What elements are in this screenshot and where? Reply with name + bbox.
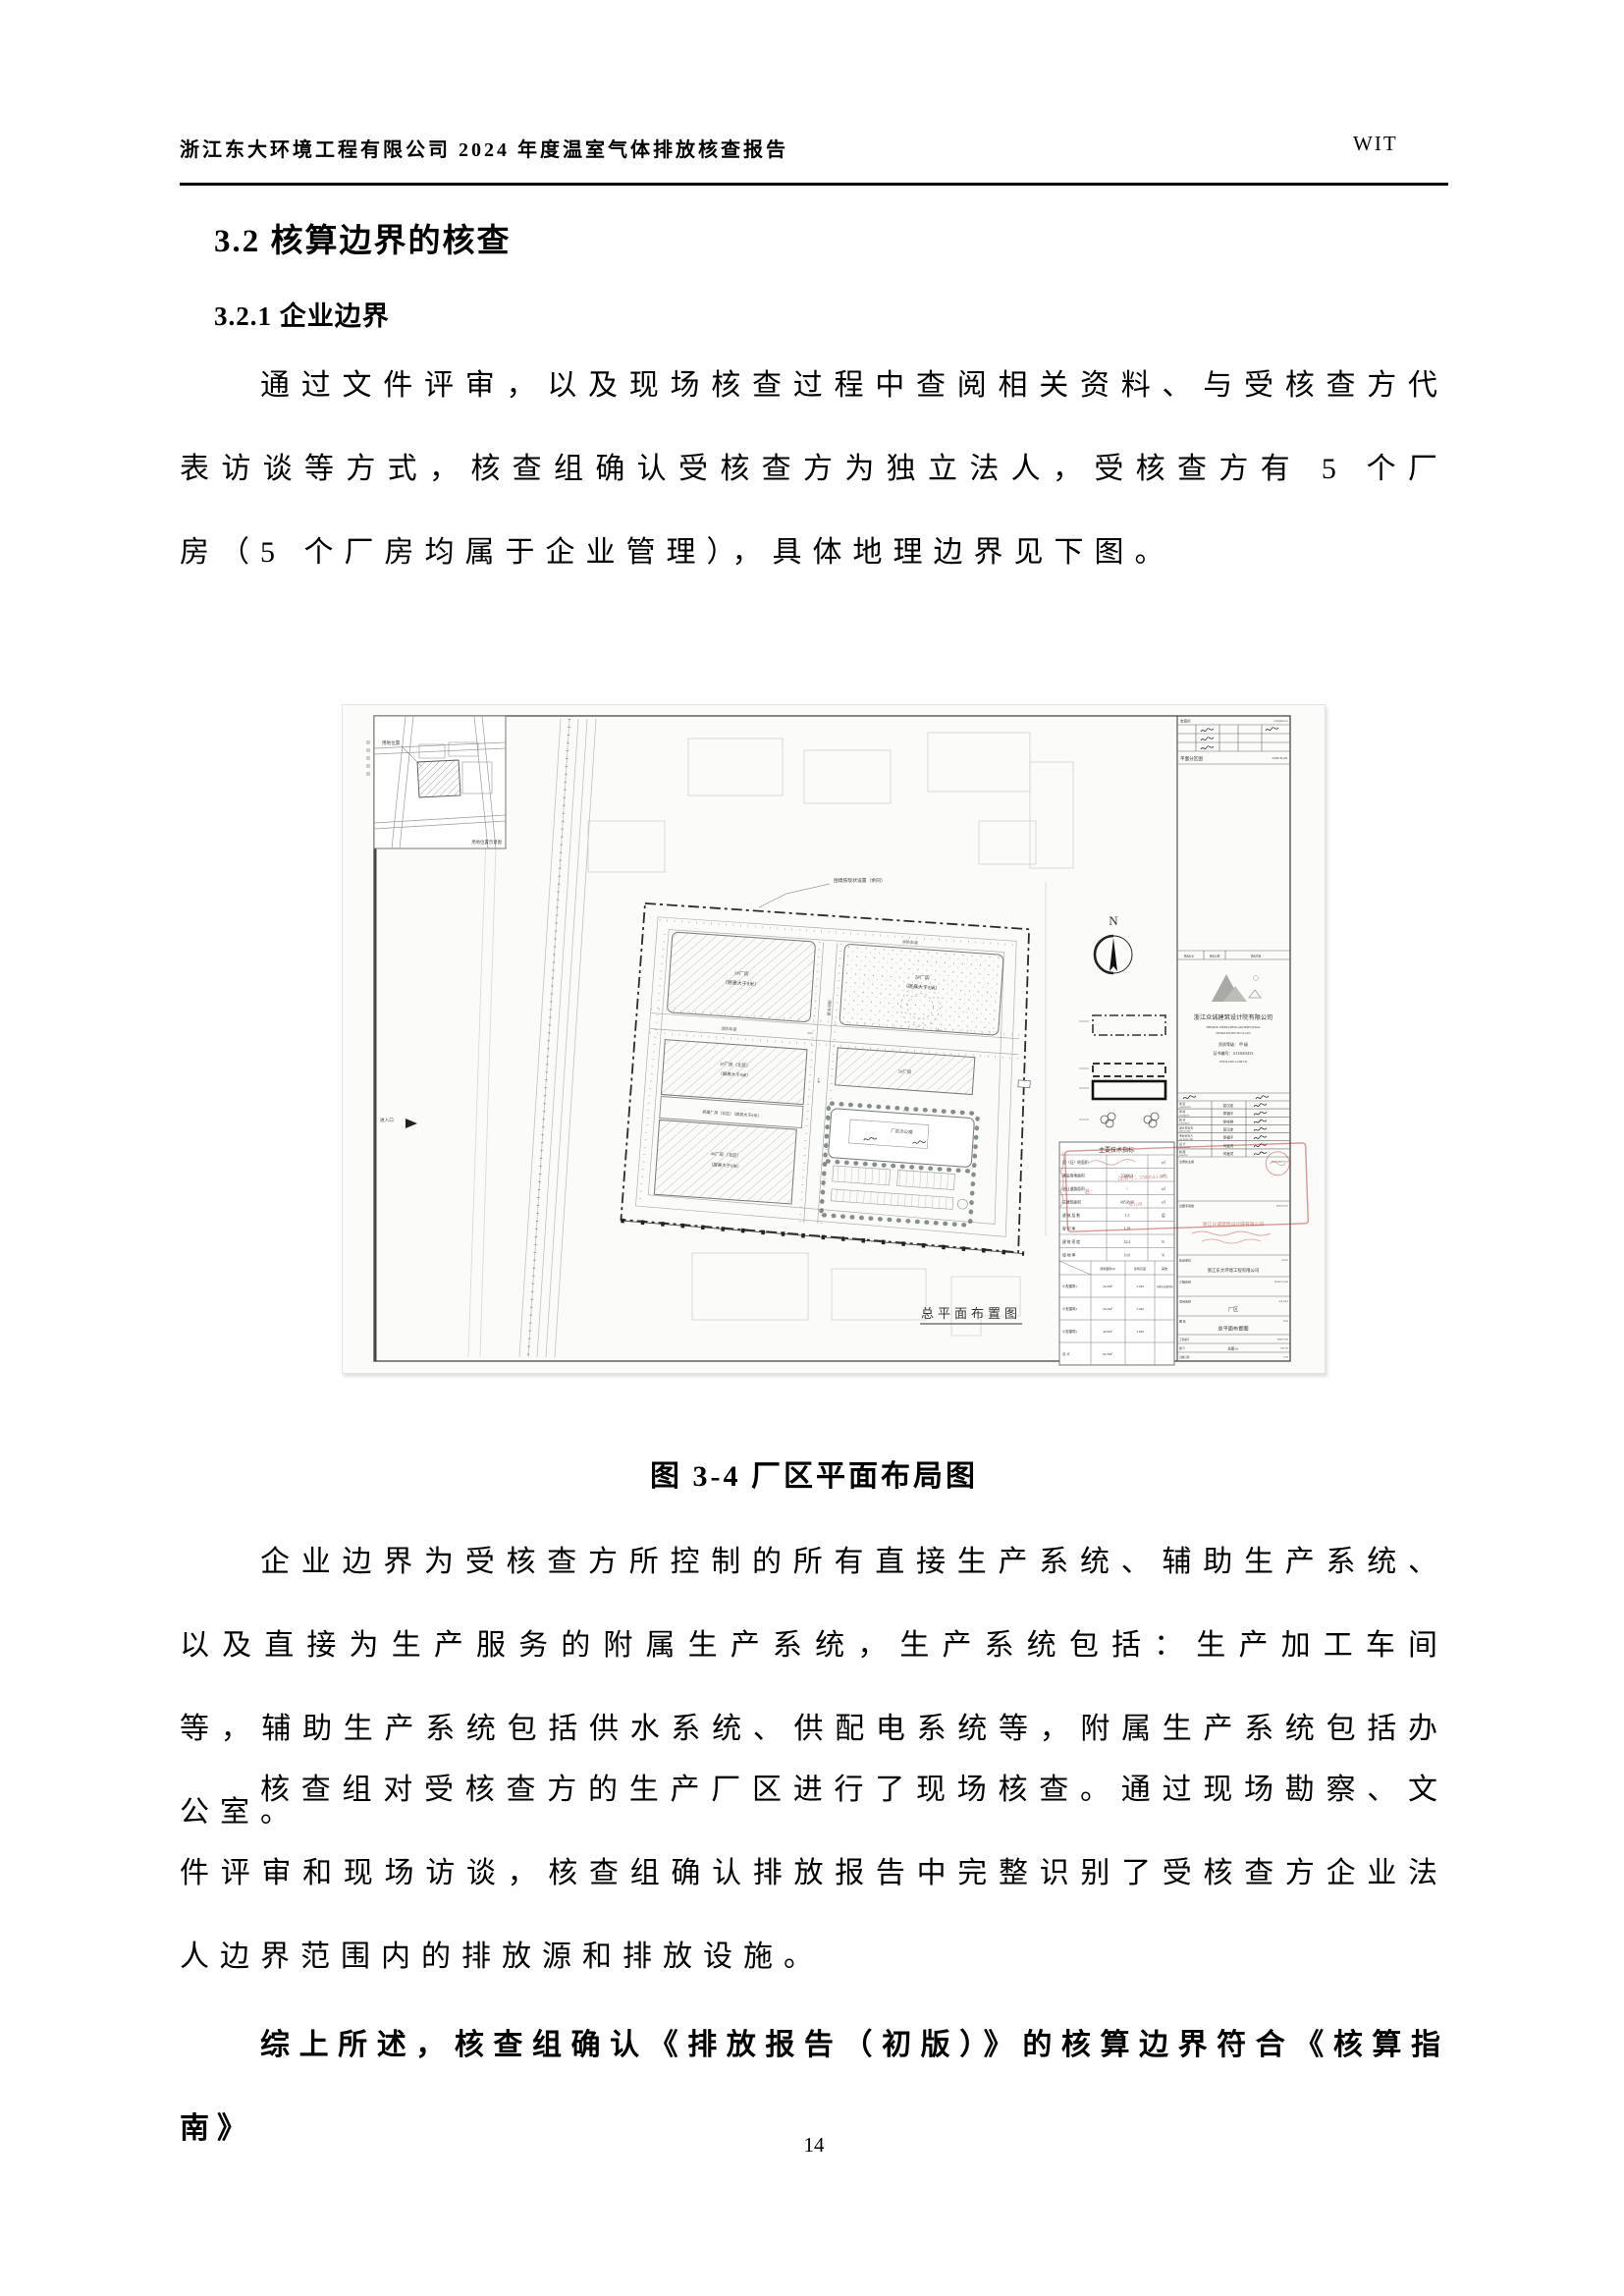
header-title: 浙江东大环境工程有限公司 2024 年度温室气体排放核查报告 [180,134,788,162]
title-block: 会签栏 CONFIRMED BY 平面分区图 ZONE PLAN 修改标记 修改… [1177,716,1290,1361]
parking-row [831,1189,953,1210]
tech-row-value: 10.0 [1124,1254,1131,1258]
design-institute-logo-icon [1212,974,1261,1002]
tb-role-cn: 审 定 [1179,1102,1185,1106]
revision-col: 修改标记 [1184,955,1195,958]
tb-role-cn: 制 图 [1179,1150,1185,1154]
fence-note-leader [759,884,830,907]
parking-row [897,1171,955,1190]
tb-name: 葛汉定 [1223,1127,1234,1132]
road-label: 消防车道 [721,1025,736,1032]
subtable-area: 94.3M² [1103,1352,1112,1356]
subtable-header: 其他 [1162,1266,1167,1271]
inset-site-parcel [417,760,460,797]
reg-seal-label: 注册执业章 [1179,1159,1194,1164]
cert-line: 证书编号：A133003433 [1214,1050,1254,1056]
inset-caption: 用地位置示意图 [471,839,502,846]
date-en: DATE [1283,1356,1289,1359]
inset-location-map: 用地位置 用地位置示意图 [374,716,506,848]
out-seal-en: DESIGN SEAL [1276,1205,1289,1208]
entrance-label: 进入口 [380,1117,394,1123]
project-no-label: 工程编号 [1179,1338,1190,1341]
grade-line: 资质等级： 甲 级 [1218,1041,1248,1047]
client-en: CLIENT [1281,1260,1289,1262]
revision-col: 修改内容 [1251,955,1262,958]
road-label: 消防车道 [826,1000,833,1015]
tb-role-en: DESIGN CHIEF [1179,1131,1191,1133]
entrance-arrow-icon [406,1119,417,1128]
zone-plan-label: 平面分区图 [1180,755,1203,762]
tb-name: 葛汉定 [1223,1103,1234,1108]
tech-row-label: 总建筑面积 [1062,1200,1081,1205]
design-company-en1: ZHEJIANG ZHONGCHENG ARCHITECTURAL [1206,1026,1261,1029]
dwg-no-label: 图 号 [1179,1346,1185,1350]
tb-name: 徐祥艳 [1223,1119,1234,1123]
tech-row-label: 用（征）地面积 [1062,1160,1089,1165]
page-number: 14 [180,2133,1448,2158]
building-4 [654,1120,796,1204]
date-label: 出图日期 [1179,1355,1190,1359]
subtable-height: 3.9M [1136,1330,1143,1334]
tech-row-value: 42.4 [1124,1240,1131,1244]
dim-text: 54.50 [936,1028,944,1032]
parking-row [833,1166,891,1185]
document-page: { "header": { "left": "浙江东大环境工程有限公司 2024… [0,0,1624,2296]
figure-caption: 图 3-4 厂区平面布局图 [180,1451,1448,1495]
project-label: 工程名称 [1179,1280,1191,1285]
subtable-header: 建筑高度 [1134,1266,1146,1271]
header-rule [180,183,1448,186]
site-area: 1#厂房 （层高大于8米） 2#厂房 （层高大于8米） 3#厂房（北区） （层高… [621,902,1047,1254]
paragraph-1: 通过文件评审，以及现场核查过程中查阅相关资料、与受核查方代表访谈等方式，核查组确… [180,344,1448,594]
subtable-area: 42.6M² [1103,1330,1112,1334]
tb-name: 何鑫灵 [1223,1151,1234,1156]
tb-name: 章福平 [1223,1111,1234,1116]
project-no-en: PROJECT NO [1277,1339,1289,1341]
tech-row-label: 建 筑 密 度 [1062,1239,1080,1244]
subtable-area: 26.2M² [1103,1307,1112,1311]
client-label: 建设单位 [1179,1258,1191,1263]
tech-row-unit: ㎡ [1162,1186,1165,1191]
subtable-label: 合 计 [1062,1351,1070,1356]
fountain [957,1199,968,1210]
dwg-no-value: 总图-01 [1227,1346,1239,1351]
sheet-title-en: TITLE [1283,1321,1289,1323]
office-building [828,1109,974,1168]
tech-row-unit: ㎡ [1162,1200,1165,1205]
tb-role-en: CHECKED BY [1179,1123,1191,1125]
tech-row-value: 1.5 [1125,1214,1130,1218]
subtable-height: 3.0M [1136,1285,1143,1288]
svg-text:N: N [1109,913,1118,928]
dim-text: 52.24 [903,1110,910,1113]
tb-role-en: APPROVED BY [1179,1106,1191,1109]
sign-bar-en: CONFIRMED BY [1273,721,1289,723]
subtable-height: 3.9M [1136,1307,1143,1311]
dim-text: 6.00 [817,1078,821,1084]
subtable-label: 小型建筑3 [1062,1329,1078,1334]
tb-role-cn: 校 对 [1179,1118,1185,1121]
sign-bar-label: 会签栏 [1180,719,1191,724]
header-logo-text: WIT [1353,132,1398,156]
subtable-label: 小型建筑1 [1062,1284,1078,1288]
tb-role-cn: 设计总负责 [1179,1126,1193,1130]
legend [1079,1015,1165,1127]
tech-row-label: 建 筑 层 数 [1062,1213,1080,1218]
dim-text: 4.00 [807,1031,813,1035]
tech-row-unit: 层 [1162,1213,1165,1218]
subtable-label: 小型建筑2 [1062,1306,1078,1311]
dwg-no-en: DWG NO [1280,1348,1288,1350]
design-company-en2: DESIGN INSTITUTE CO.,LTD [1217,1032,1251,1035]
building-1 [667,932,815,1022]
subtable-other: 功能为设备用房 [1157,1285,1173,1288]
stamp-company-name: 浙江众诚建筑设计院有限公司 [1203,1221,1265,1228]
paragraph-3: 核查组对受核查方的生产厂区进行了现场核查。通过现场勘察、文件评审和现场访谈，核查… [180,1748,1448,1998]
zone-plan-en: ZONE PLAN [1272,757,1287,760]
fence-note: 围墙按现状设置（余同） [834,877,886,884]
tb-role-en: DRAWN BY [1179,1154,1189,1157]
client-value: 浙江东大环境工程有限公司 [1208,1267,1260,1274]
design-company-name: 浙江众诚建筑设计院有限公司 [1194,1013,1272,1021]
subtable-header: 建筑面积M² [1100,1266,1115,1271]
tech-row-unit: ㎡ [1162,1160,1165,1165]
tb-role-cn: 专业负责人 [1179,1134,1193,1138]
subtitle-en: SUB TITLE [1279,1301,1289,1303]
project-en: PROJECT NAME [1274,1281,1289,1284]
tb-name: 章福平 [1223,1135,1234,1140]
plan-sheet-title: 总平面布置图 [921,1306,1021,1321]
subtitle-value: 厂区 [1228,1307,1238,1313]
tb-role-en: VERIFIED BY [1179,1115,1190,1117]
tb-role-cn: 审 核 [1179,1110,1185,1114]
gate-house [1018,1080,1030,1088]
site-plan-figure: 用地位置 用地位置示意图 围墙按现状设置（余同） 进入口 1#厂房 （层高大于8… [342,704,1326,1374]
out-seal-label: 出图专用章 [1179,1203,1194,1208]
tech-row-label: 容 积 率 [1062,1227,1075,1231]
frame-side-marks [366,740,370,776]
revision-col: 修改日期 [1210,955,1220,958]
subtitle-label: 项目名称 [1179,1299,1191,1304]
tb-role-en: DISCIPLINE CHIEF [1179,1139,1194,1141]
inset-pointer-label: 用地位置 [382,739,401,746]
north-arrow-icon: N [1095,913,1132,973]
section-heading: 3.2 核算边界的核查 [214,214,512,261]
sheet-title-value: 总平面布置图 [1218,1325,1248,1333]
building-demolish-label: 拆建厂房（北区）（层高大于8米） [702,1108,761,1118]
website-line: WWW.ZJZC.COM.CN [1219,1060,1248,1064]
sheet-title-label: 图 名 [1179,1319,1186,1324]
site-plan-drawing: 用地位置 用地位置示意图 围墙按现状设置（余同） 进入口 1#厂房 （层高大于8… [343,705,1325,1373]
subsection-heading: 3.2.1 企业边界 [214,295,390,333]
subtable-area: 26.2M² [1103,1285,1112,1288]
tb-role-cn: 设 计 [1179,1142,1185,1146]
road-label: 消防车道 [902,938,918,945]
tech-row-label: 绿 地 率 [1062,1253,1075,1258]
